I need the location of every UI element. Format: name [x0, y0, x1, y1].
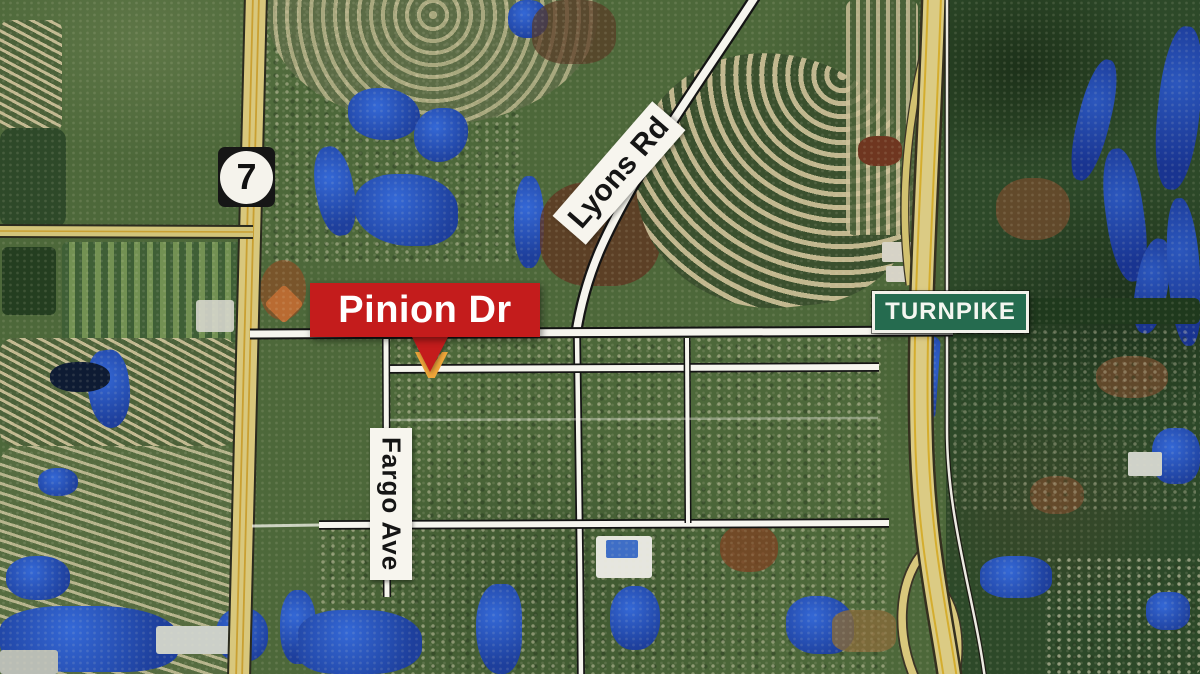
- route-7-number: 7: [236, 156, 256, 198]
- satellite-map: Pinion Dr 7 Lyons Rd Fargo Ave TURNPIKE: [0, 0, 1200, 674]
- road-pinion-dr: [383, 367, 879, 369]
- road-mid-street: [687, 338, 688, 523]
- fargo-ave-label: Fargo Ave: [370, 428, 412, 580]
- road-turnpike: [902, 0, 985, 674]
- road-south-street: [252, 523, 889, 526]
- route-7-shield-circle: 7: [220, 151, 273, 204]
- road-network: [0, 0, 1200, 674]
- callout-pointer: [411, 335, 449, 372]
- turnpike-sign: TURNPIKE: [872, 291, 1029, 333]
- road-minor-street: [390, 418, 878, 420]
- road-west-arterial: [0, 231, 253, 232]
- fargo-ave-label-text: Fargo Ave: [376, 437, 407, 571]
- pinion-dr-callout: Pinion Dr: [310, 283, 540, 337]
- route-7-shield: 7: [218, 147, 275, 207]
- turnpike-sign-text: TURNPIKE: [885, 298, 1016, 326]
- pinion-dr-callout-text: Pinion Dr: [338, 289, 511, 332]
